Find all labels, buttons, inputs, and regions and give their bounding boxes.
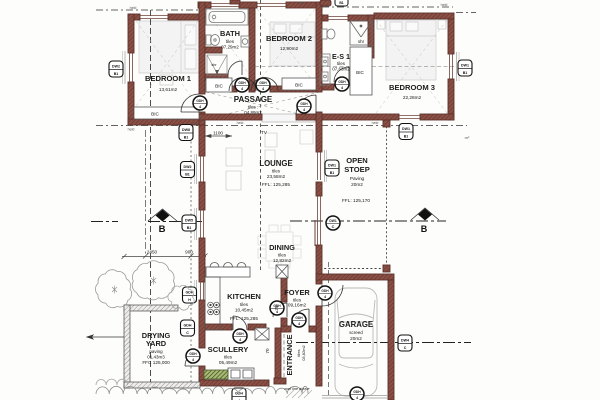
svg-text:07,29m2: 07,29m2 bbox=[221, 45, 239, 50]
svg-text:E-S 1: E-S 1 bbox=[332, 52, 350, 61]
svg-text:23,58m2: 23,58m2 bbox=[267, 174, 286, 179]
svg-text:FOYER: FOYER bbox=[284, 288, 310, 297]
svg-text:B1: B1 bbox=[187, 226, 192, 230]
svg-text:DW1: DW1 bbox=[402, 127, 410, 131]
svg-text:1100: 1100 bbox=[213, 131, 223, 136]
svg-text:BIC: BIC bbox=[215, 84, 223, 89]
svg-text:tiles: tiles bbox=[278, 253, 287, 258]
svg-text:2450: 2450 bbox=[147, 250, 158, 255]
svg-text:01,43m3: 01,43m3 bbox=[147, 355, 165, 360]
svg-text:70: 70 bbox=[274, 305, 279, 311]
svg-text:held: held bbox=[191, 122, 198, 126]
svg-text:SCULLERY: SCULLERY bbox=[208, 345, 249, 354]
svg-text:held: held bbox=[299, 1, 306, 5]
svg-text:B1: B1 bbox=[463, 71, 468, 75]
svg-text:OPEN: OPEN bbox=[346, 156, 368, 165]
svg-text:FFL: 125,170: FFL: 125,170 bbox=[342, 198, 370, 203]
svg-text:GDH: GDH bbox=[338, 80, 346, 84]
svg-text:DW1: DW1 bbox=[328, 164, 336, 168]
svg-text:GDH: GDH bbox=[353, 390, 361, 394]
svg-text:tiles: tiles bbox=[337, 61, 346, 66]
svg-text:B1: B1 bbox=[184, 136, 189, 140]
svg-text:13,61m2: 13,61m2 bbox=[159, 87, 178, 92]
svg-text:BIC: BIC bbox=[295, 83, 303, 88]
svg-text:C: C bbox=[186, 331, 189, 335]
svg-text:tiles: tiles bbox=[272, 169, 281, 174]
svg-text:12,82m2: 12,82m2 bbox=[273, 258, 292, 263]
svg-text:B: B bbox=[421, 224, 428, 234]
svg-text:BEDROOM 1: BEDROOM 1 bbox=[145, 74, 192, 83]
svg-text:FFC 125,000: FFC 125,000 bbox=[142, 360, 170, 365]
svg-text:DW1: DW1 bbox=[329, 219, 336, 223]
svg-text:m²: m² bbox=[465, 135, 470, 140]
svg-text:22,28m2: 22,28m2 bbox=[403, 95, 422, 100]
svg-text:DW5: DW5 bbox=[185, 219, 193, 223]
svg-text:05,49m2: 05,49m2 bbox=[219, 360, 238, 365]
svg-text:DW2: DW2 bbox=[184, 165, 192, 169]
svg-text:B1: B1 bbox=[114, 72, 119, 76]
svg-text:BIC: BIC bbox=[151, 112, 159, 117]
svg-text:B1: B1 bbox=[330, 171, 335, 175]
svg-text:tiles :: tiles : bbox=[248, 105, 259, 110]
svg-text:shr: shr bbox=[358, 39, 365, 44]
svg-text:held: held bbox=[237, 121, 244, 125]
svg-text:paving: paving bbox=[149, 349, 163, 354]
svg-text:held: held bbox=[128, 128, 135, 132]
svg-text:STOEP: STOEP bbox=[344, 165, 370, 174]
svg-text:tiles: tiles bbox=[240, 302, 249, 307]
svg-text:10,45m2: 10,45m2 bbox=[235, 308, 254, 313]
svg-text:BATH: BATH bbox=[220, 29, 240, 38]
svg-text:LOUNGE: LOUNGE bbox=[259, 159, 292, 168]
svg-text:GDH: GDH bbox=[189, 352, 197, 356]
svg-text:GDH: GDH bbox=[295, 316, 303, 320]
svg-text:B1: B1 bbox=[339, 1, 343, 5]
svg-text:FFL: 125,285: FFL: 125,285 bbox=[262, 182, 290, 187]
svg-text:07,63m2: 07,63m2 bbox=[332, 67, 350, 72]
svg-text:held: held bbox=[441, 3, 448, 7]
svg-text:20m2: 20m2 bbox=[351, 182, 363, 187]
svg-text:PASSAGE: PASSAGE bbox=[234, 95, 273, 104]
svg-text:GDH: GDH bbox=[259, 81, 267, 85]
svg-text:BEDROOM 3: BEDROOM 3 bbox=[389, 83, 435, 92]
svg-text:B: B bbox=[159, 224, 166, 235]
svg-text:09,16m2: 09,16m2 bbox=[288, 303, 307, 308]
svg-text:DW8: DW8 bbox=[182, 128, 190, 132]
svg-text:B1: B1 bbox=[404, 135, 409, 139]
svg-text:tiles: tiles bbox=[226, 39, 235, 44]
svg-text:GDH: GDH bbox=[300, 102, 308, 106]
svg-text:KITCHEN: KITCHEN bbox=[227, 292, 261, 301]
svg-text:YARD: YARD bbox=[146, 339, 167, 348]
svg-text:shr: shr bbox=[211, 63, 217, 67]
svg-text:BIC: BIC bbox=[356, 70, 364, 75]
svg-text:C: C bbox=[332, 225, 335, 229]
svg-text:12,90m2: 12,90m2 bbox=[280, 46, 299, 51]
svg-text:GDH: GDH bbox=[238, 81, 246, 85]
svg-text:GDH: GDH bbox=[321, 289, 329, 293]
svg-text:TV: TV bbox=[261, 130, 268, 135]
svg-text:held: held bbox=[130, 6, 137, 10]
svg-text:900: 900 bbox=[185, 250, 193, 255]
svg-text:BEDROOM 2: BEDROOM 2 bbox=[266, 34, 312, 43]
svg-text:roof line above: roof line above bbox=[285, 387, 310, 391]
svg-text:GDH: GDH bbox=[184, 324, 192, 328]
svg-text:70: 70 bbox=[265, 348, 270, 354]
svg-text:GARAGE: GARAGE bbox=[339, 320, 373, 329]
svg-text:20m2: 20m2 bbox=[350, 336, 362, 341]
svg-text:FFL: 125,285: FFL: 125,285 bbox=[230, 316, 258, 321]
svg-text:ENTRANCE: ENTRANCE bbox=[285, 334, 294, 375]
svg-text:C: C bbox=[404, 346, 407, 350]
svg-text:04,89m2: 04,89m2 bbox=[244, 110, 262, 115]
svg-text:GDH: GDH bbox=[235, 392, 243, 396]
svg-text:GDH: GDH bbox=[236, 332, 244, 336]
svg-text:DW4: DW4 bbox=[401, 339, 409, 343]
svg-text:Paving: Paving bbox=[350, 176, 365, 181]
svg-text:H: H bbox=[188, 298, 191, 302]
svg-text:tiles: tiles bbox=[224, 355, 233, 360]
svg-text:03,82m2: 03,82m2 bbox=[301, 344, 306, 360]
svg-text:GDH: GDH bbox=[196, 99, 204, 103]
svg-text:DINING: DINING bbox=[269, 243, 295, 252]
svg-text:B1: B1 bbox=[185, 173, 190, 177]
svg-text:DW2: DW2 bbox=[112, 65, 120, 69]
svg-text:screed: screed bbox=[349, 330, 363, 335]
svg-text:held: held bbox=[372, 121, 379, 125]
svg-text:DW1: DW1 bbox=[461, 64, 469, 68]
